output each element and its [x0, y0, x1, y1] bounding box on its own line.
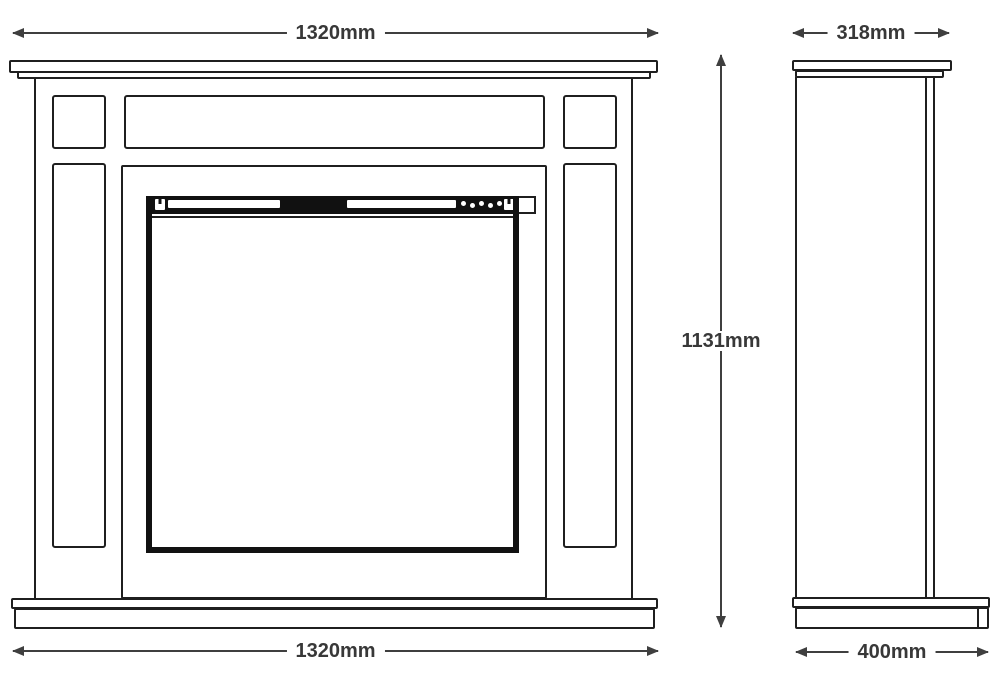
- insert-glass-top-edge: [152, 216, 513, 218]
- arrowhead-right-icon: [938, 28, 950, 38]
- dimension-label: 1320mm: [286, 641, 384, 661]
- dimension-overall-height: 1131mm: [711, 55, 731, 627]
- dimension-label: 318mm: [828, 23, 915, 43]
- side-body-back-inner-edge: [925, 77, 927, 598]
- insert-control-strip: [146, 196, 519, 214]
- side-base-board: [795, 607, 989, 629]
- control-button-icon: [470, 203, 475, 208]
- side-body-front-edge: [795, 77, 797, 598]
- side-body-back-outer-edge: [933, 77, 935, 598]
- side-base-end-line: [977, 609, 979, 627]
- insert-frame-right-bar: [513, 196, 519, 552]
- insert-frame-left-bar: [146, 196, 152, 552]
- dimension-label: 1320mm: [286, 23, 384, 43]
- front-panel-tall-right: [563, 163, 617, 548]
- insert-vent-slot-right: [347, 200, 456, 208]
- front-opening-surround: [121, 165, 547, 599]
- fireplace-dimension-diagram: 1320mm 318mm 1131mm 1320mm 400mm: [0, 0, 1000, 691]
- dimension-depth-top: 318mm: [793, 23, 949, 43]
- control-button-icon: [479, 201, 484, 206]
- arrowhead-left-icon: [12, 646, 24, 656]
- control-button-icon: [497, 201, 502, 206]
- front-panel-top-left: [52, 95, 106, 149]
- front-shelf-step: [17, 71, 651, 79]
- front-base-board: [14, 608, 655, 629]
- dimension-label: 1131mm: [673, 331, 770, 351]
- switch-mark-icon: [159, 199, 162, 204]
- dimension-front-width-bottom: 1320mm: [13, 641, 658, 661]
- arrowhead-right-icon: [647, 28, 659, 38]
- switch-mark-icon: [508, 199, 511, 204]
- control-button-icon: [488, 203, 493, 208]
- arrowhead-right-icon: [977, 647, 989, 657]
- front-left-pilaster-edge: [34, 78, 36, 598]
- front-panel-top-right: [563, 95, 617, 149]
- insert-vent-slot-left: [168, 200, 280, 208]
- arrowhead-left-icon: [792, 28, 804, 38]
- side-shelf-step: [795, 70, 944, 78]
- dimension-label: 400mm: [849, 642, 936, 662]
- arrowhead-left-icon: [795, 647, 807, 657]
- front-panel-frieze: [124, 95, 545, 149]
- dimension-depth-base: 400mm: [796, 642, 988, 662]
- control-button-icon: [461, 201, 466, 206]
- front-panel-tall-left: [52, 163, 106, 548]
- arrowhead-up-icon: [716, 54, 726, 66]
- arrowhead-left-icon: [12, 28, 24, 38]
- insert-trim-flange: [517, 196, 536, 214]
- front-right-pilaster-edge: [631, 78, 633, 598]
- insert-frame-bottom-bar: [146, 547, 519, 553]
- arrowhead-right-icon: [647, 646, 659, 656]
- dimension-front-width-top: 1320mm: [13, 23, 658, 43]
- insert-switch-left: [155, 199, 165, 210]
- arrowhead-down-icon: [716, 616, 726, 628]
